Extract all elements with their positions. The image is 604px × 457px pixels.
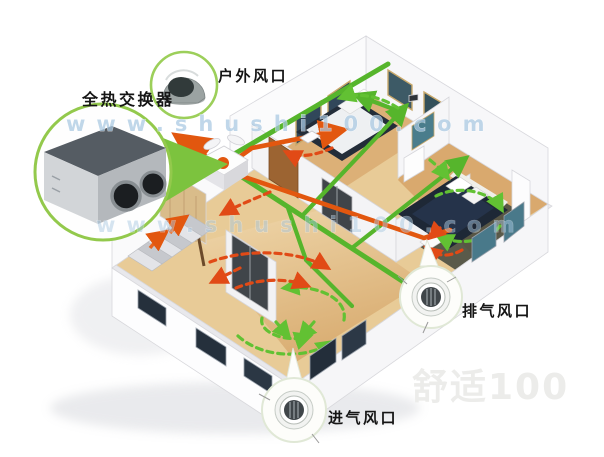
watermark-brand-logo: 舒适100 — [412, 367, 569, 408]
tv-screen — [409, 94, 418, 101]
ventilation-diagram: www.shushi100.com www.shushi100.com 舒适10… — [0, 0, 604, 457]
label-heat-exchanger: 全热交换器 — [81, 90, 175, 109]
label-outdoor-vent: 户外风口 — [218, 67, 288, 85]
house-cutaway-canvas: www.shushi100.com www.shushi100.com 舒适10… — [0, 0, 604, 457]
label-intake-vent: 进气风口 — [328, 409, 398, 427]
label-exhaust-vent: 排气风口 — [462, 302, 532, 320]
watermark-url-line2: www.shushi100.com — [96, 213, 525, 237]
watermark-url-line1: www.shushi100.com — [66, 112, 495, 136]
